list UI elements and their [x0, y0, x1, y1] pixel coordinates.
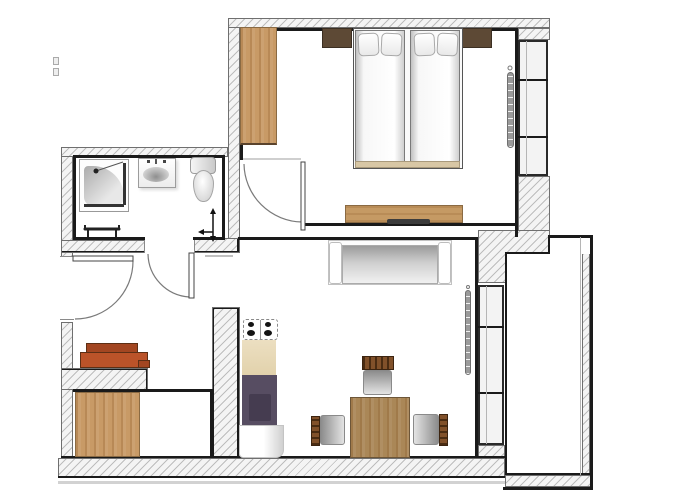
floor-plan [0, 0, 700, 500]
living-window-frame-line [486, 286, 487, 444]
line-bathroom-bottom-left [73, 237, 145, 240]
sofa-armrest-right [438, 242, 451, 284]
wall-bathroom-bedroom-divider [228, 18, 240, 250]
washbasin-tap-right [163, 160, 166, 163]
line-balcony-left [505, 252, 507, 475]
bedroom-window-frame-line [526, 41, 527, 175]
washbasin-bowl [143, 167, 169, 182]
line-bathroom-bottom-right [193, 237, 225, 240]
dining-table [350, 397, 410, 458]
line-bottom-band-bottom [58, 476, 505, 478]
line-balcony-outer-right [590, 235, 593, 490]
wall-bath-bottom-left [61, 240, 145, 253]
stove-divider [260, 320, 261, 339]
bedroom-door-threshold [243, 158, 301, 160]
plan-mark-2 [53, 68, 59, 76]
fridge-unit [239, 425, 284, 458]
washbasin-spout [155, 159, 157, 164]
kitchen-counter [242, 340, 276, 375]
pillow-3 [413, 32, 435, 56]
chair-west-seat [320, 415, 345, 445]
chair-north-seat [363, 370, 392, 395]
bathroom-door-gap [144, 240, 195, 253]
sofa-seat [342, 245, 438, 284]
wall-bedroom-right-lower [518, 176, 550, 235]
shower-wall-bar-bottom [84, 204, 124, 207]
line-balcony-outer-bottom [503, 487, 593, 490]
chair-east-seat [413, 414, 439, 445]
bedroom-window-divider-1 [518, 79, 548, 81]
passage-threshold [205, 255, 233, 257]
pillow-1 [357, 32, 379, 56]
bedroom-window-divider-2 [518, 136, 548, 138]
line-balcony-floor-bottom [505, 473, 591, 475]
line-storage-right [210, 389, 213, 458]
living-window-divider-2 [478, 392, 504, 394]
living-window [478, 285, 504, 445]
bed-foot-strip [355, 161, 460, 168]
line-balcony-top [505, 252, 550, 254]
shower-wall-bar-right [123, 163, 126, 205]
wall-bath-bottom-right [193, 238, 240, 253]
bedroom-radiator [507, 72, 514, 148]
burner-3 [247, 330, 255, 336]
kitchen-sink [249, 394, 271, 421]
shadow-bottom [58, 481, 505, 484]
nightstand-right [462, 28, 492, 48]
burner-4 [264, 330, 272, 336]
shoe-shelf-nub [138, 360, 150, 368]
chair-north-back [362, 356, 394, 370]
wall-shelf-stub [61, 368, 148, 390]
pillow-4 [436, 32, 458, 56]
wall-left-lower [61, 322, 73, 458]
living-window-divider-1 [478, 326, 504, 328]
chair-east-back [439, 414, 448, 446]
line-balcony-outer-top [548, 235, 593, 238]
balcony-floor [507, 254, 582, 475]
chair-west-back [311, 416, 320, 446]
bedroom-window [518, 40, 548, 176]
entrance-door-gap [60, 256, 74, 320]
storage-wardrobe [75, 392, 140, 457]
burner-1 [248, 322, 254, 327]
balcony-floor-notch [550, 237, 590, 254]
wall-balcony-bottom [505, 475, 591, 487]
washbasin-tap-left [147, 160, 150, 163]
sideboard-tv [387, 219, 430, 224]
wall-bedroom-right-upper [518, 28, 550, 40]
pillow-2 [380, 32, 402, 56]
wall-balcony-right [582, 238, 590, 487]
line-balcony-floor-right [580, 237, 581, 475]
nightstand-left [322, 28, 352, 48]
sofa-armrest-left [329, 242, 342, 284]
burner-2 [265, 322, 271, 327]
wall-bottom-band [58, 458, 505, 478]
bedroom-wardrobe [240, 27, 277, 145]
plan-mark-1 [53, 57, 59, 65]
living-radiator [465, 290, 471, 375]
wall-hall-kitchen-divider [212, 307, 240, 458]
